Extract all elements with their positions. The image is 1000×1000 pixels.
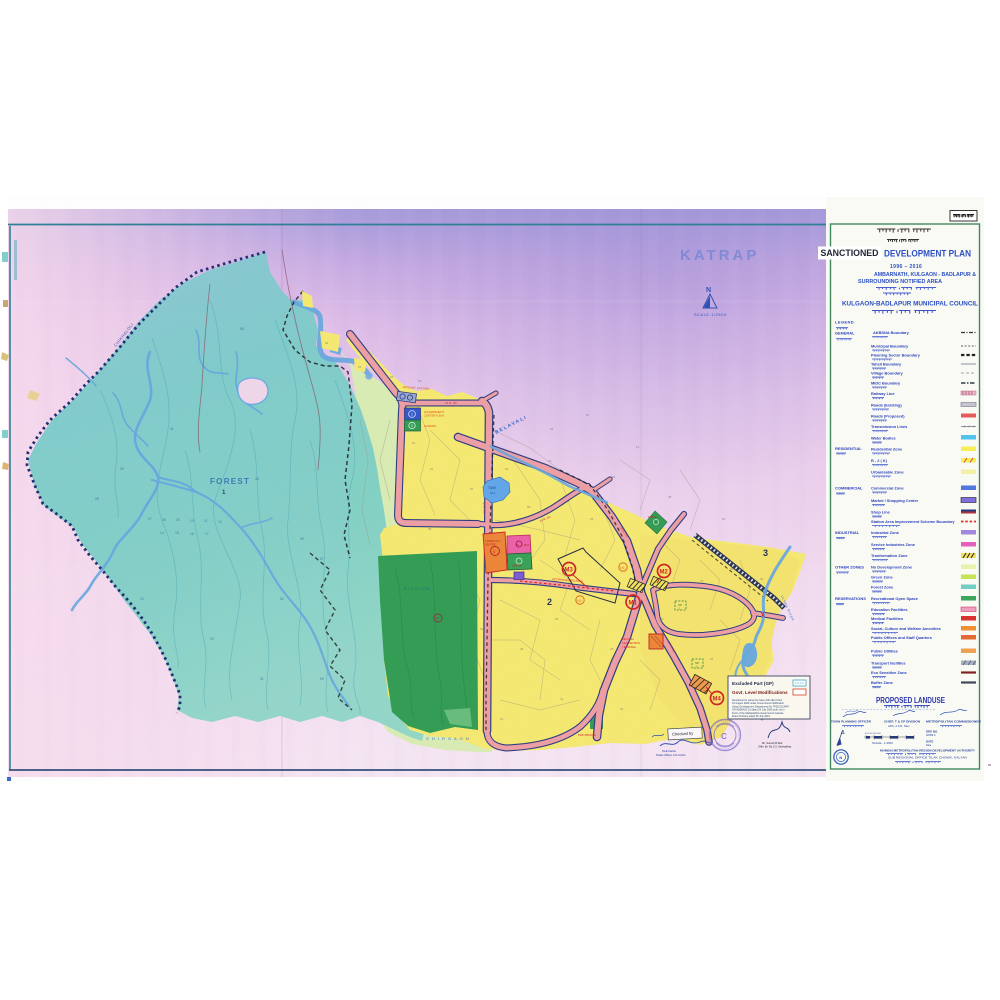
svg-text:Railway Line: Railway Line (871, 391, 895, 396)
svg-text:Green Zone: Green Zone (871, 575, 893, 580)
svg-text:Industrial Zone: Industrial Zone (871, 530, 900, 535)
svg-text:METROPOLITAN COMMISSIONER: METROPOLITAN COMMISSIONER (926, 720, 982, 724)
svg-text:Medical Facilities: Medical Facilities (871, 616, 903, 621)
svg-text:RESERVATIONS: RESERVATIONS (835, 596, 866, 601)
svg-text:COMMERCIAL: COMMERCIAL (835, 486, 863, 491)
svg-text:SANCTIONED: SANCTIONED (821, 248, 879, 259)
svg-text:Shop Line: Shop Line (871, 510, 891, 515)
svg-text:Eco Sensitive Zone: Eco Sensitive Zone (871, 670, 908, 675)
svg-text:Education Facilities: Education Facilities (871, 607, 908, 612)
svg-text:Village Boundary: Village Boundary (871, 371, 904, 376)
svg-text:Urbanisable Zone: Urbanisable Zone (871, 470, 904, 475)
svg-text:MIDC Boundary: MIDC Boundary (871, 381, 901, 386)
svg-text:SCALE - 1:2500: SCALE - 1:2500 (872, 741, 893, 745)
svg-text:DEVELOPMENT PLAN: DEVELOPMENT PLAN (884, 249, 971, 260)
svg-text:R - 2 ( K): R - 2 ( K) (871, 458, 888, 463)
svg-text:GENERAL: GENERAL (835, 331, 855, 336)
svg-text:Roads (Existing): Roads (Existing) (871, 403, 902, 408)
svg-text:Date: Date (926, 744, 932, 747)
svg-text:AMBARNATH, KULGAON - BADLAPUR: AMBARNATH, KULGAON - BADLAPUR & (874, 272, 976, 278)
svg-text:TOWN PLANNING OFFICER: TOWN PLANNING OFFICER (831, 720, 872, 724)
svg-text:OTHER ZONES: OTHER ZONES (835, 565, 864, 570)
svg-text:DRG NO.: DRG NO. (926, 730, 938, 734)
svg-text:Public Utilities: Public Utilities (871, 649, 898, 654)
svg-text:Municipal Boundary: Municipal Boundary (871, 344, 909, 349)
svg-text:Planning Sector Boundary: Planning Sector Boundary (871, 353, 921, 358)
svg-text:50 0 50 100 150: 50 0 50 100 150 (865, 733, 882, 735)
svg-text:Commercial Zone: Commercial Zone (871, 486, 904, 491)
svg-text:Buffer Zone: Buffer Zone (871, 680, 894, 685)
svg-text:SUB REGIONAL OFFICE TILAK CHO: SUB REGIONAL OFFICE TILAK CHOWK, KALYAN (888, 756, 967, 760)
svg-text:Transmission Lines: Transmission Lines (871, 424, 907, 429)
svg-text:Forest Zone: Forest Zone (871, 585, 894, 590)
svg-text:APRM A: APRM A (926, 734, 936, 737)
svg-text:Social, Culture and Welfare Am: Social, Culture and Welfare Amenities (871, 626, 941, 631)
svg-text:Residential Zone: Residential Zone (871, 447, 903, 452)
svg-text:RESIDENTIAL: RESIDENTIAL (835, 446, 862, 451)
svg-text:AKBSNA Boundary: AKBSNA Boundary (873, 330, 910, 335)
svg-text:Roads (Proposed): Roads (Proposed) (871, 414, 905, 419)
svg-text:Station Area Improvement Schem: Station Area Improvement Scheme Boundary (871, 519, 955, 524)
svg-text:KULGAON-BADLAPUR MUNICIPAL C: KULGAON-BADLAPUR MUNICIPAL COUNCIL (842, 301, 978, 308)
svg-text:Tahsil Boundary: Tahsil Boundary (871, 362, 902, 367)
svg-text:INDUSTRIAL: INDUSTRIAL (835, 530, 860, 535)
svg-text:Water Bodies: Water Bodies (871, 436, 896, 441)
svg-text:CHIEF, T & CP DIVISION: CHIEF, T & CP DIVISION (884, 720, 921, 724)
svg-text:PROPOSED LANDUSE: PROPOSED LANDUSE (876, 696, 946, 705)
svg-text:N: N (839, 755, 842, 760)
svg-text:Public Offices and Staff Quart: Public Offices and Staff Quarters (871, 635, 932, 640)
svg-text:Transport facilities: Transport facilities (871, 661, 906, 666)
svg-text:Recreational Open Space: Recreational Open Space (871, 596, 919, 601)
svg-text:SURROUNDING NOTIFIED AREA: SURROUNDING NOTIFIED AREA (858, 279, 942, 285)
svg-text:Market / Shopping Center: Market / Shopping Center (871, 498, 919, 503)
svg-text:MUMBAI METROPOLITAN REGION DEV: MUMBAI METROPOLITAN REGION DEVELOPMENT A… (880, 749, 976, 753)
svg-text:ADS, 4 S.R. Navi: ADS, 4 S.R. Navi (888, 724, 910, 728)
svg-text:No Development Zone: No Development Zone (871, 565, 913, 570)
svg-text:1996 – 2016: 1996 – 2016 (890, 264, 922, 270)
svg-text:Tranformation Zone: Tranformation Zone (871, 553, 908, 558)
svg-text:LEGEND: LEGEND (835, 320, 854, 325)
svg-text:Service Industries Zone: Service Industries Zone (871, 542, 916, 547)
